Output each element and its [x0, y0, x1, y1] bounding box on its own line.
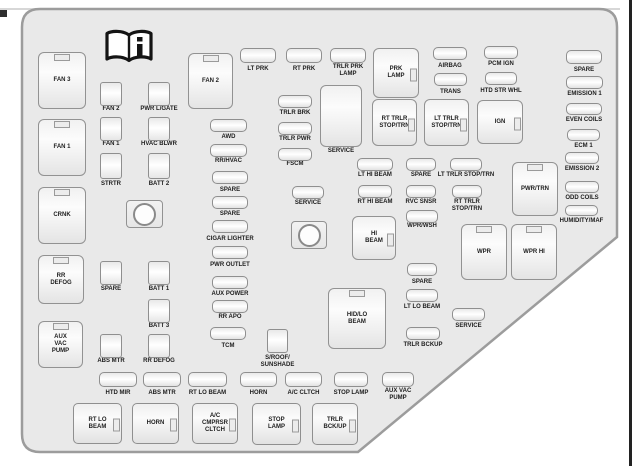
- fuse-spare-6-label: SPARE: [388, 279, 456, 286]
- box-hid-lo-beam: HID/LO BEAM: [328, 288, 386, 349]
- fuse-ecm-1-label: ECM 1: [550, 143, 618, 150]
- fuse-horn: [240, 372, 277, 387]
- fuse-lt-hi-beam: [357, 158, 393, 171]
- connector-tab: [349, 290, 365, 297]
- fuse-rr-hvac-label: RR/HVAC: [195, 158, 263, 165]
- fuse-spare-3: [212, 171, 248, 184]
- fuse-even-coils-label: EVEN COILS: [550, 117, 618, 124]
- box-trlr-bck-up-label: TRLR BCK/UP: [322, 416, 347, 431]
- fuse-spare-5: [406, 158, 436, 171]
- box-wpr: WPR: [461, 224, 507, 280]
- box-rt-lo-beam-label: RT LO BEAM: [88, 416, 108, 431]
- box-fan-3: FAN 3: [38, 52, 86, 109]
- box-prk-lamp-label: PRK LAMP: [387, 65, 406, 80]
- fuse-fscm-label: FSCM: [261, 161, 329, 168]
- fuse-batt-3: [148, 299, 170, 323]
- fuse-htd-str-whl: [485, 72, 517, 85]
- fuse-trlr-bckup-label: TRLR BCKUP: [389, 342, 457, 349]
- relay-circle: [298, 224, 321, 247]
- fuse-fscm: [278, 148, 312, 161]
- box-rt-lo-beam: RT LO BEAM: [73, 403, 122, 444]
- box-rr-defog: RR DEFOG: [38, 255, 84, 304]
- fuse-fan-2: [100, 82, 122, 106]
- box-hid-lo-beam-label: HID/LO BEAM: [346, 311, 368, 326]
- fuse-lt-lo-beam: [406, 289, 438, 302]
- fuse-emission-2-label: EMISSION 2: [548, 166, 616, 173]
- fuse-trans: [434, 73, 467, 86]
- box-rr-defog-label: RR DEFOG: [49, 272, 72, 287]
- fuse-spare-2: [566, 50, 602, 64]
- box-rt-trlr-stop-trn-label: RT TRLR STOP/TRN: [378, 115, 410, 130]
- fuse-abs-mtr-2: [143, 372, 181, 387]
- box-fan-2-label: FAN 2: [201, 77, 220, 86]
- box-lt-trlr-stop-trn-label: LT TRLR STOP/TRN: [430, 115, 462, 130]
- fuse-emission-1-label: EMISSION 1: [551, 91, 619, 98]
- box-horn: HORN: [132, 403, 179, 444]
- fuse-rvc-snsr: [406, 185, 436, 198]
- fuse-fan-1: [100, 117, 122, 141]
- relay-2: [291, 221, 327, 249]
- box-crnk-label: CRNK: [52, 211, 71, 220]
- connector-tab: [113, 419, 120, 432]
- fuse-lt-prk: [240, 48, 276, 63]
- connector-tab: [54, 54, 70, 61]
- fuse-rt-trlr-stop-trn-label: RT TRLR STOP/TRN: [433, 199, 501, 212]
- relay-circle: [133, 203, 156, 226]
- box-ign-label: IGN: [494, 118, 507, 127]
- fuse-humidity-maf-label: HUMIDITY/MAF: [548, 218, 616, 225]
- fuse-stop-lamp: [334, 372, 368, 387]
- fuse-ac-cltch: [285, 372, 322, 387]
- fuse-batt-1: [148, 261, 170, 285]
- fuse-trlr-prk-lamp: [330, 48, 366, 63]
- relay-1: [126, 200, 163, 228]
- connector-tab: [53, 257, 69, 264]
- box-stop-lamp-label: STOP LAMP: [267, 416, 286, 431]
- fuse-lt-lo-beam-label: LT LO BEAM: [388, 304, 456, 311]
- fuse-pcm-ign: [484, 46, 518, 59]
- box-trlr-bck-up: TRLR BCK/UP: [312, 403, 358, 445]
- fuse-trlr-prk-lamp-label: TRLR PRK LAMP: [314, 64, 382, 77]
- fuse-rt-hi-beam: [358, 185, 392, 198]
- box-horn-label: HORN: [146, 419, 166, 428]
- connector-tab: [170, 419, 177, 432]
- box-ign: IGN: [477, 100, 523, 144]
- fuse-aux-power: [212, 276, 248, 289]
- fuse-sroof-sunshade: [267, 329, 288, 353]
- fuse-hvac-blwr: [148, 117, 170, 141]
- fuse-sroof-sunshade-label: S/ROOF/ SUNSHADE: [244, 355, 312, 368]
- connector-tab: [229, 419, 236, 432]
- fuse-service-1: [292, 186, 324, 199]
- box-wpr-hi: WPR HI: [511, 224, 557, 280]
- fuse-odd-coils-label: ODD COILS: [548, 195, 616, 202]
- fuse-htd-str-whl-label: HTD STR WHL: [467, 88, 535, 95]
- connector-tab: [410, 69, 417, 82]
- fuse-cigar-lighter: [212, 220, 248, 233]
- fuse-service-2-label: SERVICE: [435, 323, 503, 330]
- fuse-lt-trlr-stop-trn-label: LT TRLR STOP/TRN: [432, 172, 500, 179]
- box-crnk: CRNK: [38, 187, 86, 244]
- fuse-block-diagram: FAN 3FAN 1CRNKRR DEFOGAUX VAC PUMPFAN 2P…: [0, 0, 634, 466]
- fuse-spare-3-label: SPARE: [196, 187, 264, 194]
- box-wpr-label: WPR: [476, 248, 492, 257]
- box-service-tall-label: SERVICE: [307, 148, 375, 155]
- fuse-service-2: [452, 308, 485, 321]
- fuse-rr-defog: [148, 334, 170, 358]
- fuse-batt-1-label: BATT 1: [125, 286, 193, 293]
- fuse-emission-1: [566, 76, 603, 89]
- fuse-wpr-wsh-label: WPR/WSH: [388, 223, 456, 230]
- fuse-trlr-pwr: [278, 122, 312, 135]
- fuse-htd-mir: [99, 372, 137, 387]
- fuse-spare-2-label: SPARE: [550, 67, 618, 74]
- box-lt-trlr-stop-trn: LT TRLR STOP/TRN: [424, 99, 469, 146]
- box-ac-cmprsr-cltch-label: A/C CMPRSR CLTCH: [201, 412, 229, 434]
- box-ac-cmprsr-cltch: A/C CMPRSR CLTCH: [192, 403, 238, 444]
- fuse-emission-2: [565, 152, 599, 164]
- fuse-rr-apo: [212, 300, 248, 313]
- box-pwr-trn-label: PWR/TRN: [520, 185, 550, 194]
- fuse-spare-4: [212, 196, 248, 209]
- connector-tab: [514, 118, 521, 131]
- fuse-spare-4-label: SPARE: [196, 211, 264, 218]
- fuse-aux-power-label: AUX POWER: [196, 291, 264, 298]
- connector-tab: [408, 118, 415, 131]
- fuse-rt-lo-beam: [188, 372, 227, 387]
- fuse-cigar-lighter-label: CIGAR LIGHTER: [196, 236, 264, 243]
- box-stop-lamp: STOP LAMP: [252, 403, 301, 445]
- fuse-airbag: [433, 47, 467, 60]
- box-fan-3-label: FAN 3: [52, 76, 71, 85]
- fuse-even-coils: [566, 103, 602, 115]
- fuse-trlr-brk: [278, 95, 312, 108]
- fuse-panel-items: FAN 3FAN 1CRNKRR DEFOGAUX VAC PUMPFAN 2P…: [0, 0, 634, 466]
- fuse-odd-coils: [565, 181, 599, 193]
- fuse-tcm-label: TCM: [194, 343, 262, 350]
- fuse-humidity-maf: [565, 205, 598, 216]
- fuse-aux-vac-pump: [382, 372, 414, 387]
- fuse-ecm-1: [567, 129, 600, 141]
- fuse-spare-1: [100, 261, 122, 285]
- connector-tab: [292, 420, 299, 433]
- fuse-rt-trlr-stop-trn: [452, 185, 482, 198]
- fuse-hvac-blwr-label: HVAC BLWR: [125, 141, 193, 148]
- fuse-spare-6: [407, 263, 437, 276]
- connector-tab: [527, 164, 543, 171]
- connector-tab: [387, 234, 394, 247]
- fuse-strtr: [100, 153, 122, 179]
- fuse-trlr-pwr-label: TRLR PWR: [261, 136, 329, 143]
- connector-tab: [476, 226, 492, 233]
- fuse-tcm: [210, 327, 246, 340]
- box-aux-vac-pump-label: AUX VAC PUMP: [51, 333, 70, 355]
- box-fan-2: FAN 2: [188, 53, 233, 109]
- fuse-pwr-outlet: [212, 246, 248, 259]
- fuse-batt-2: [148, 153, 170, 179]
- fuse-aux-vac-pump-label: AUX VAC PUMP: [364, 388, 432, 401]
- connector-tab: [526, 226, 542, 233]
- fuse-lt-trlr-stop-trn: [450, 158, 482, 171]
- fuse-pwr-lgate: [148, 82, 170, 106]
- fuse-batt-2-label: BATT 2: [125, 181, 193, 188]
- fuse-trlr-bckup: [406, 327, 440, 340]
- fuse-rr-apo-label: RR APO: [196, 314, 264, 321]
- box-wpr-hi-label: WPR HI: [522, 248, 546, 257]
- fuse-batt-3-label: BATT 3: [125, 323, 193, 330]
- connector-tab: [54, 121, 70, 128]
- fuse-awd: [210, 119, 247, 132]
- connector-tab: [54, 189, 70, 196]
- connector-tab: [349, 420, 356, 433]
- connector-tab: [460, 118, 467, 131]
- fuse-service-1-label: SERVICE: [274, 200, 342, 207]
- box-rt-trlr-stop-trn: RT TRLR STOP/TRN: [372, 99, 417, 146]
- fuse-pwr-outlet-label: PWR OUTLET: [196, 262, 264, 269]
- fuse-pcm-ign-label: PCM IGN: [467, 61, 535, 68]
- fuse-awd-label: AWD: [195, 134, 263, 141]
- connector-tab: [53, 323, 69, 330]
- box-fan-1-label: FAN 1: [52, 143, 71, 152]
- fuse-wpr-wsh: [406, 210, 438, 223]
- fuse-trlr-brk-label: TRLR BRK: [261, 110, 329, 117]
- fuse-rt-prk: [286, 48, 322, 63]
- fuse-pwr-lgate-label: PWR L/GATE: [125, 106, 193, 113]
- connector-tab: [203, 55, 219, 62]
- fuse-rr-hvac: [210, 144, 247, 157]
- box-hi-beam-label: HI BEAM: [364, 230, 384, 245]
- fuse-abs-mtr-1: [100, 334, 122, 358]
- fuse-rr-defog-label: RR DEFOG: [125, 358, 193, 365]
